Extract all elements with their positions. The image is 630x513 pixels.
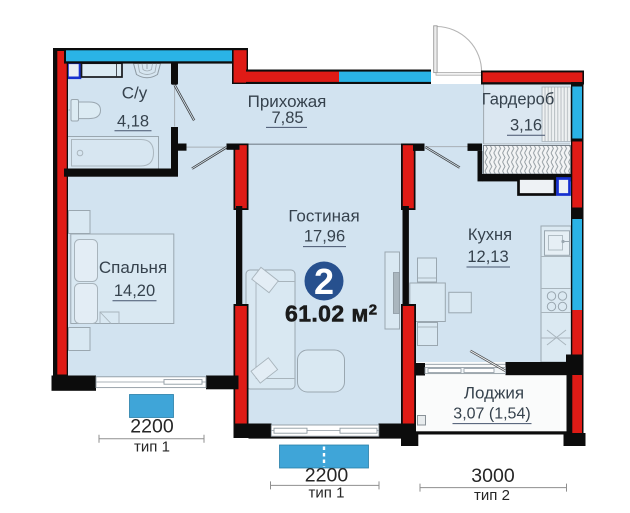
svg-text:3,16: 3,16: [510, 117, 542, 135]
svg-text:4,18: 4,18: [117, 113, 149, 131]
svg-text:2200: 2200: [305, 465, 349, 487]
svg-text:2200: 2200: [130, 416, 174, 438]
svg-text:Спальня: Спальня: [99, 258, 167, 277]
svg-text:тип 1: тип 1: [134, 439, 170, 456]
svg-text:Лоджия: Лоджия: [464, 384, 524, 403]
svg-text:7,85: 7,85: [271, 109, 303, 127]
svg-text:2: 2: [314, 261, 334, 302]
svg-text:Кухня: Кухня: [468, 226, 512, 244]
svg-text:тип 2: тип 2: [474, 487, 510, 504]
svg-text:14,20: 14,20: [114, 282, 155, 300]
svg-text:12,13: 12,13: [467, 248, 508, 266]
svg-text:Гардероб: Гардероб: [482, 91, 555, 109]
svg-text:3000: 3000: [471, 465, 515, 487]
svg-text:3,07 (1,54): 3,07 (1,54): [453, 406, 530, 423]
svg-text:С/у: С/у: [122, 84, 148, 103]
svg-text:61.02 м2: 61.02 м2: [285, 301, 378, 327]
svg-text:Гостиная: Гостиная: [288, 207, 359, 226]
svg-text:тип 1: тип 1: [309, 485, 345, 502]
svg-text:17,96: 17,96: [304, 228, 345, 246]
